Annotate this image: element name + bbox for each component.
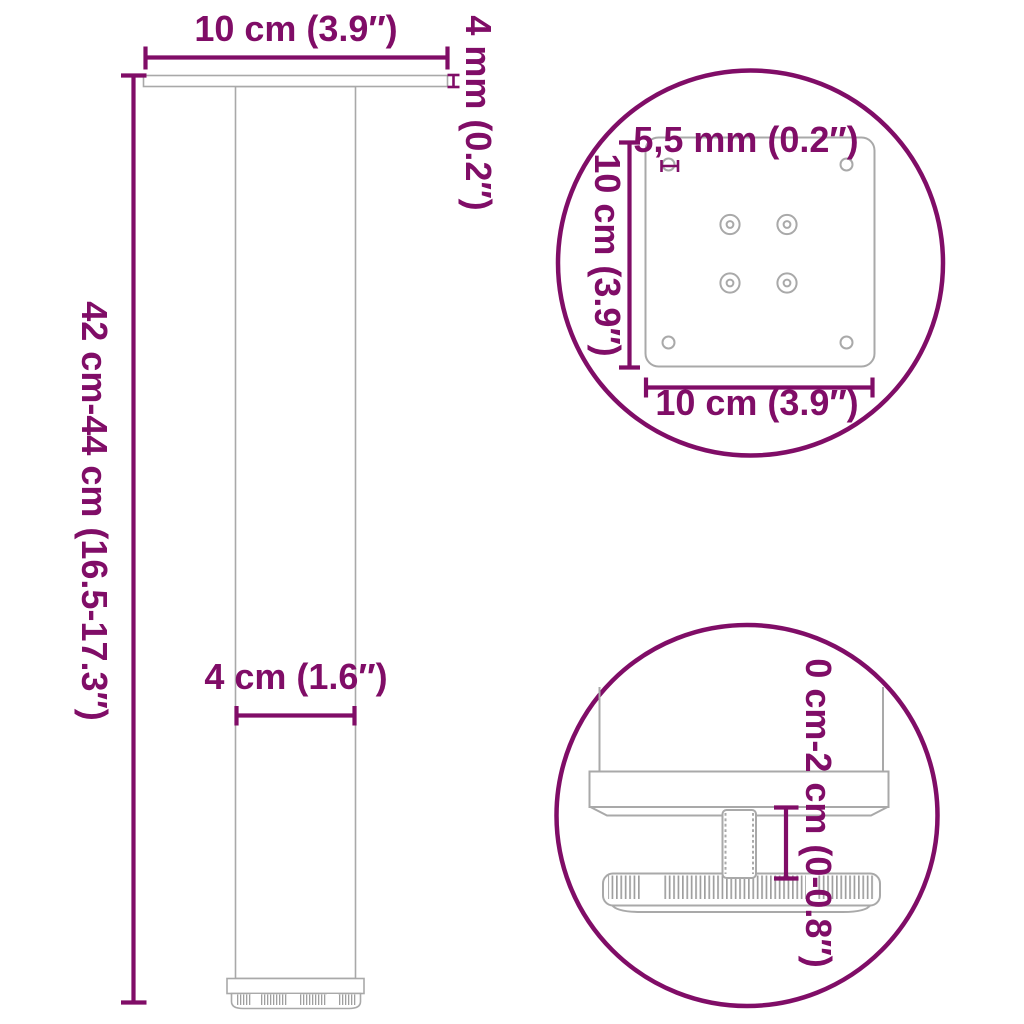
mounting-plate-edge [144, 76, 448, 87]
product-dimension-diagram: 10 cm (3.9″) 4 mm (0.2″) 42 cm-44 cm (16… [0, 0, 1024, 1024]
diagram-drawing [0, 0, 1024, 1024]
table-leg-side-view [144, 76, 448, 1009]
knurl-highlight [327, 994, 338, 1006]
leg-height-dimension-label: 42 cm-44 cm (16.5-17.3″) [76, 301, 112, 720]
plate-thickness-dimension-label: 4 mm (0.2″) [460, 15, 496, 210]
threaded-rod [723, 810, 757, 878]
leg-tube [236, 87, 356, 979]
top-width-dimension-label: 10 cm (3.9″) [194, 11, 397, 47]
knurl-highlight [251, 994, 261, 1006]
mounting-plate-top-view [646, 138, 875, 367]
knurl-highlight [287, 994, 300, 1006]
foot-adjust-range-dimension-label: 0 cm-2 cm (0-0.8″) [800, 658, 836, 967]
foot-collar [227, 979, 364, 994]
knurl-highlight [641, 875, 664, 900]
plate-width-dimension-label: 10 cm (3.9″) [655, 385, 858, 421]
hole-diameter-dimension-label: 5,5 mm (0.2″) [633, 122, 858, 158]
leg-diameter-dimension-label: 4 cm (1.6″) [204, 659, 387, 695]
adjustable-foot-detail-circle [557, 625, 938, 1006]
foot-collar-detail [590, 772, 889, 808]
plate-depth-dimension-label: 10 cm (3.9″) [589, 153, 625, 356]
